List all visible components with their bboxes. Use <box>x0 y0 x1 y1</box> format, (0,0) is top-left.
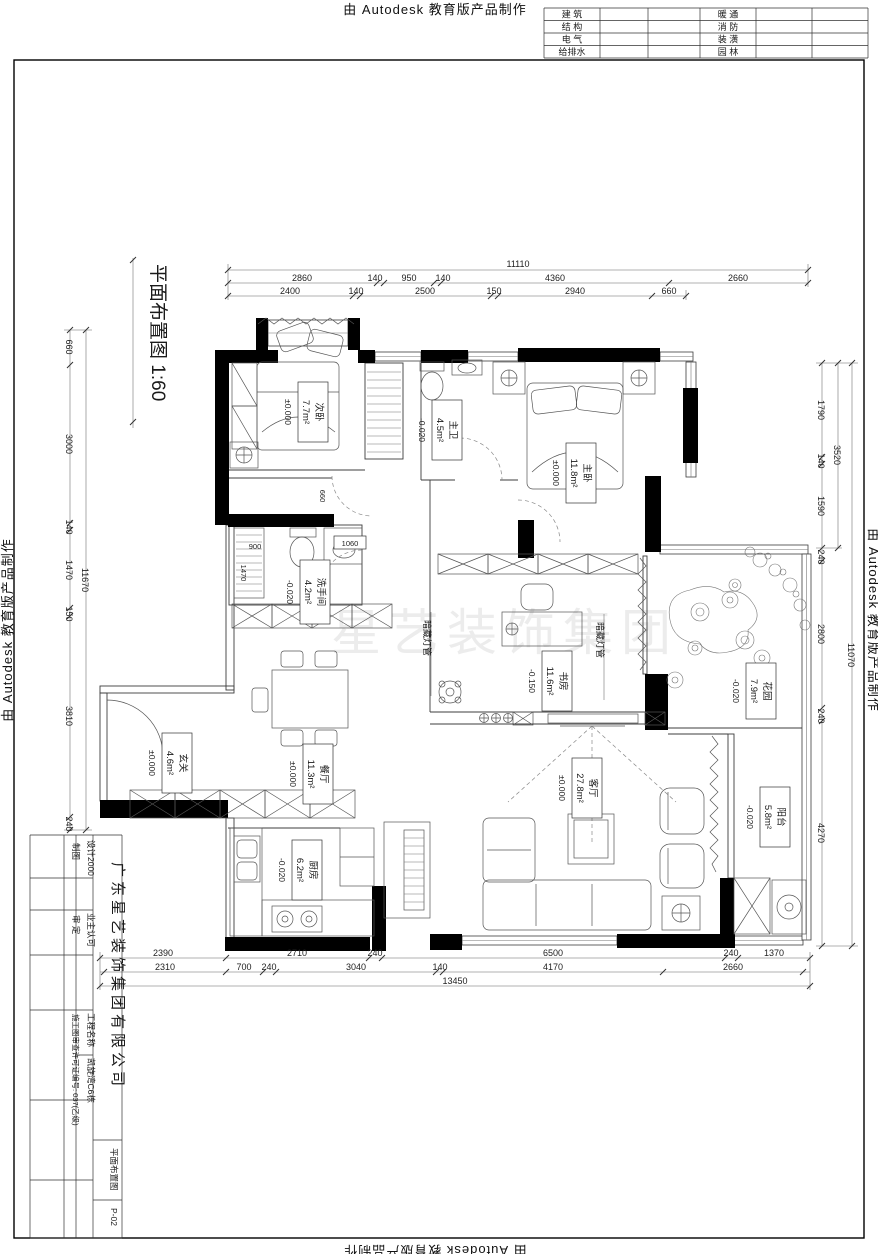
room-area: 27.8m² <box>574 773 585 803</box>
room-label-dining: 餐厅 11.3m² ±0.000 <box>288 744 333 804</box>
room-name: 主卧 <box>581 463 593 483</box>
dim-text: 2390 <box>153 948 173 958</box>
dim-text: 660 <box>661 286 676 296</box>
master-bath-fixtures <box>420 360 482 400</box>
dim-text: 1470 <box>239 565 248 582</box>
dim-text: 700 <box>236 962 251 972</box>
dim-text: 2660 <box>723 962 743 972</box>
room-area: 5.8m² <box>762 805 773 829</box>
room-elevation: -0.150 <box>527 669 537 693</box>
room-area: 11.8m² <box>568 459 579 488</box>
side-table-lamp <box>662 896 700 930</box>
room-label-kitchen: 厨房 6.2m² -0.020 <box>277 840 322 900</box>
room-elevation: ±0.000 <box>288 761 298 787</box>
discipline-table: 建 筑 结 构 电 气 给排水 暖 通 消 防 装 潢 园 林 <box>544 8 868 58</box>
room-elevation: ±0.000 <box>147 750 157 776</box>
dim-text: 13450 <box>442 976 467 986</box>
dim-text: 3040 <box>346 962 366 972</box>
ceiling-lamp-icon <box>236 447 252 463</box>
room-label-entry: 玄关 4.6m² ±0.000 <box>147 733 192 793</box>
dim-text: 2710 <box>287 948 307 958</box>
stamp-right: 由 Autodesk 教育版产品制作 <box>866 528 878 711</box>
dims-top: 11110 2860 140 950 140 4360 2660 2400 14… <box>225 259 811 300</box>
lamp-row <box>480 714 513 723</box>
room-label-garden: 花园 7.9m² -0.020 <box>731 663 776 719</box>
dim-text: 3000 <box>64 434 74 454</box>
room-name: 餐厅 <box>318 764 330 784</box>
dim-text: 140 <box>348 286 363 296</box>
door-swing <box>332 476 372 516</box>
dim-text: 3810 <box>64 706 74 726</box>
dim-text: 140 <box>367 273 382 283</box>
room-name: 玄关 <box>177 753 189 773</box>
field-draft: 制图 <box>71 843 81 860</box>
dim-text: 150 <box>64 606 74 621</box>
dim-text: 2940 <box>565 286 585 296</box>
dims-bottom: 2390 2710 240 6500 240 1370 2310 700 240… <box>97 948 813 990</box>
dim-text: 2860 <box>292 273 312 283</box>
washing-machine <box>772 880 806 934</box>
dim-text: 140 <box>435 273 450 283</box>
dim-text: 2800 <box>816 624 826 644</box>
room-area: 4.6m² <box>164 751 175 775</box>
dim-text: 1590 <box>816 496 826 516</box>
room-elevation: -0.020 <box>277 858 287 882</box>
table-cell: 给排水 <box>558 46 585 57</box>
field-sheet-number: P-02 <box>109 1208 119 1226</box>
dim-text: 140 <box>816 453 826 468</box>
plant-icon <box>439 681 461 703</box>
room-name: 厨房 <box>307 860 319 879</box>
room-elevation: -0.020 <box>745 805 755 829</box>
ceiling-lamp-icon <box>501 370 517 386</box>
dim-text: 240 <box>367 948 382 958</box>
field-review: 审 定 <box>71 915 81 935</box>
sofa <box>483 818 651 930</box>
room-area: 7.9m² <box>748 679 759 703</box>
dim-text: 240 <box>816 549 826 564</box>
room-area: 11.6m² <box>544 667 555 696</box>
room-label-master-bedroom: 主卧 11.8m² ±0.000 <box>551 443 596 503</box>
room-area: 4.2m² <box>302 580 313 604</box>
dim-text: 1370 <box>764 948 784 958</box>
dim-text: 4360 <box>545 273 565 283</box>
room-name: 阳台 <box>775 807 787 826</box>
dim-text: 11110 <box>506 259 529 269</box>
dim-text: 240 <box>261 962 276 972</box>
room-area: 6.2m² <box>294 858 305 882</box>
dim-text: 4170 <box>543 962 563 972</box>
dim-text: 660 <box>64 339 74 354</box>
field-design: 设计2000 <box>86 840 96 876</box>
room-name: 主卫 <box>447 420 459 440</box>
dim-text: 240 <box>723 948 738 958</box>
table-cell: 园 林 <box>718 46 739 57</box>
dim-text: 660 <box>318 490 327 503</box>
room-area: 7.7m² <box>300 400 311 424</box>
stamp-bottom: 由 Autodesk 教育版产品制作 <box>343 1243 526 1254</box>
closet-shelves <box>367 372 401 452</box>
room-name: 花园 <box>761 681 773 700</box>
table-cell: 结 构 <box>562 21 583 32</box>
note-hidden-light-right: 暗藏灯管 <box>595 614 606 700</box>
room-elevation: -0.020 <box>285 580 295 604</box>
dim-text: 2660 <box>728 273 748 283</box>
room-name: 洗手间 <box>315 578 327 607</box>
table-cell: 装 潢 <box>718 34 739 45</box>
entry-door-swing <box>107 700 163 756</box>
dim-text: 240 <box>816 708 826 723</box>
dim-text: 950 <box>401 273 416 283</box>
note-hidden-light-left: 暗藏灯管 <box>422 612 433 696</box>
field-project-label: 工程名称 <box>86 1013 96 1048</box>
center-watermark: 星艺装饰集团 <box>331 605 679 661</box>
dim-text: 900 <box>249 542 262 551</box>
dims-right: 1790 140 1590 240 2800 240 4270 3520 110… <box>816 360 858 949</box>
dining-table <box>252 651 348 746</box>
ceiling-lamp-icon <box>631 370 647 386</box>
dim-text: 2500 <box>415 286 435 296</box>
room-label-balcony: 阳台 5.8m² -0.020 <box>745 787 790 847</box>
dim-text: 1060 <box>342 539 359 548</box>
room-name: 书房 <box>557 671 569 690</box>
stamp-left: 由 Autodesk 教育版产品制作 <box>0 538 15 721</box>
field-project-name: 凯旋湾C6栋 <box>86 1058 96 1103</box>
note-text: 暗藏灯管 <box>595 622 606 658</box>
piano <box>384 822 430 918</box>
field-owner-approval: 业主认可 <box>86 913 96 948</box>
room-label-bedroom2: 次卧 7.7m² ±0.000 <box>283 382 328 442</box>
dim-text: 3520 <box>832 445 842 465</box>
title-block: 设计2000 制图 审 定 业主认可 工程名称 凯旋湾C6栋 施工图审查许可证编… <box>30 835 126 1238</box>
dim-text: 240 <box>64 816 74 831</box>
room-label-washroom: 洗手间 4.2m² -0.020 <box>285 560 330 624</box>
room-elevation: ±0.000 <box>551 460 561 486</box>
room-elevation: ±0.000 <box>283 399 293 425</box>
room-area: 4.5m² <box>434 418 445 442</box>
room-elevation: -0.020 <box>417 418 427 442</box>
field-license: 施工图审查许可证编号: 037(乙级) <box>71 1014 81 1126</box>
armchairs <box>660 788 704 888</box>
field-drawing-name: 平面布置图 <box>109 1148 119 1191</box>
stamp-top: 由 Autodesk 教育版产品制作 <box>343 2 526 17</box>
room-name: 客厅 <box>587 778 599 798</box>
dims-interior: 900 1470 1060 660 <box>239 490 358 582</box>
dim-text: 2400 <box>280 286 300 296</box>
dim-text: 6500 <box>543 948 563 958</box>
dim-text: 150 <box>486 286 501 296</box>
room-elevation: ±0.000 <box>557 775 567 801</box>
room-label-master-bath: 主卫 4.5m² -0.020 <box>417 400 462 460</box>
table-cell: 建 筑 <box>562 9 583 20</box>
dims-left: 660 3000 140 1470 150 3810 240 11670 <box>64 327 92 833</box>
table-cell: 暖 通 <box>718 9 739 20</box>
floor-plan-canvas: 由 Autodesk 教育版产品制作 由 Autodesk 教育版产品制作 由 … <box>0 0 878 1254</box>
dim-text: 1470 <box>64 560 74 580</box>
plan-title: 平面布置图 1:60 <box>130 257 169 428</box>
room-label-living: 客厅 27.8m² ±0.000 <box>557 758 602 818</box>
room-area: 11.3m² <box>305 760 316 789</box>
table-cell: 电 气 <box>562 34 583 45</box>
dim-text: 4270 <box>816 823 826 843</box>
room-elevation: -0.020 <box>731 679 741 703</box>
dim-text: 140 <box>64 519 74 534</box>
note-text: 暗藏灯管 <box>422 620 433 656</box>
company-name: 广东星艺装饰集团有限公司 <box>109 862 126 1090</box>
dim-text: 11670 <box>80 568 90 592</box>
dim-text: 1790 <box>816 400 826 420</box>
dim-text: 2310 <box>155 962 175 972</box>
drawing-sheet: { "watermarks": { "autodesk": "由 Autodes… <box>0 0 878 1254</box>
door-swing <box>460 438 502 480</box>
table-cell: 消 防 <box>718 21 739 32</box>
dim-text: 140 <box>432 962 447 972</box>
room-name: 次卧 <box>313 402 325 422</box>
coffee-table <box>568 814 614 864</box>
dim-text: 11070 <box>846 643 856 667</box>
plan-title-text: 平面布置图 1:60 <box>147 264 169 401</box>
garden-plants <box>745 547 810 630</box>
